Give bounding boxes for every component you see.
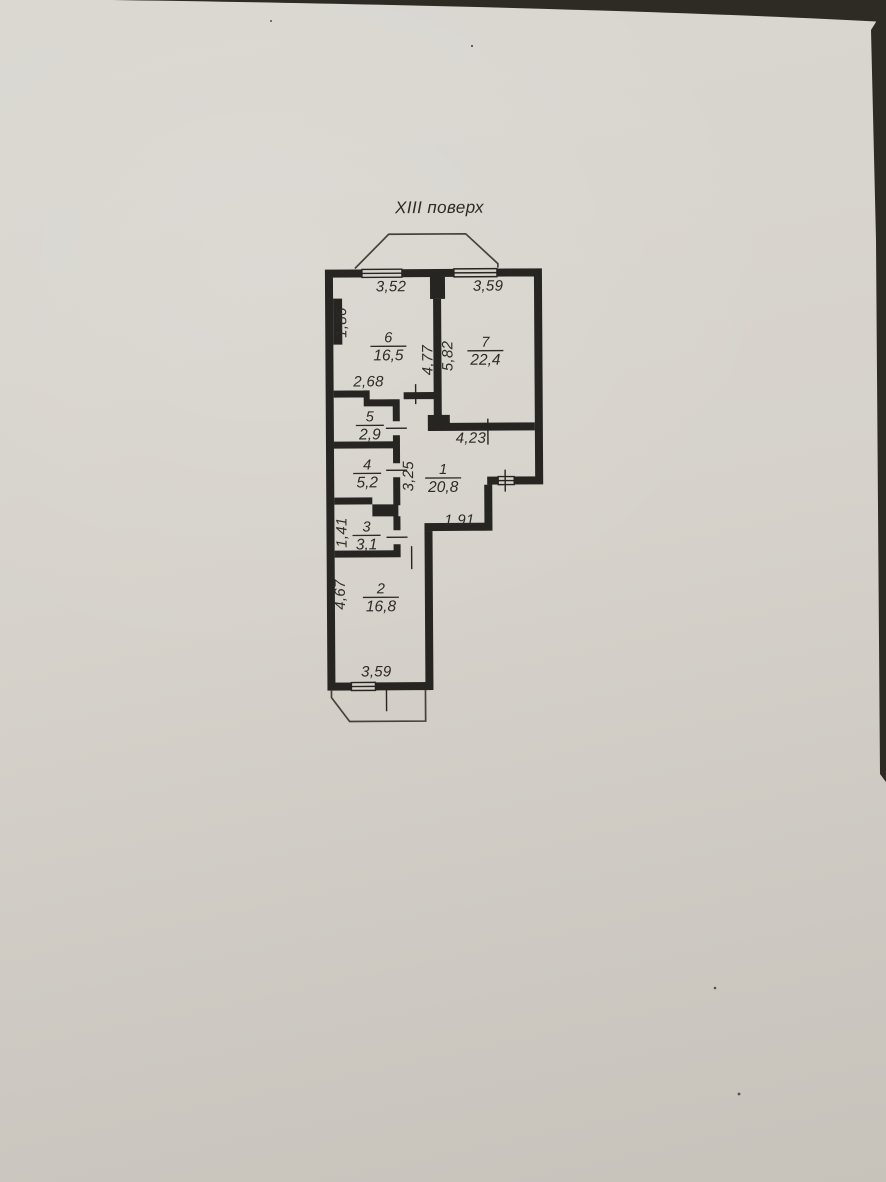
room-label-3: 3 3,1 (352, 519, 380, 553)
balcony-top-outline (355, 234, 498, 269)
room4-area: 5,2 (356, 474, 378, 491)
room4-number: 4 (363, 457, 371, 473)
room2-number: 2 (376, 581, 385, 597)
room-label-6: 6 16,5 (370, 330, 406, 364)
photo-background-edges (112, 0, 886, 1095)
dim-room6-right: 4,77 (419, 344, 436, 375)
apartment-floor-plan: XIII поверх (0, 0, 886, 1182)
dim-hall-top: 4,23 (456, 430, 487, 447)
room7-area: 22,4 (469, 352, 501, 369)
room7-number: 7 (481, 335, 490, 351)
room6-number: 6 (384, 330, 393, 346)
dim-hall-bottom: 1,91 (444, 512, 475, 529)
room3-number: 3 (362, 519, 370, 535)
window-top-left (362, 269, 402, 277)
paper-speck (738, 1093, 741, 1096)
paper-speck (471, 45, 473, 47)
room-label-2: 2 16,8 (363, 581, 399, 615)
window-bottom (351, 682, 375, 690)
room5-number: 5 (366, 409, 375, 425)
room-label-7: 7 22,4 (467, 335, 503, 369)
dim-top-left: 3,52 (376, 278, 407, 295)
dim-top-right: 3,59 (473, 278, 504, 295)
room-label-4: 4 5,2 (353, 457, 381, 491)
floor-plan-drawing: XIII поверх (324, 197, 544, 721)
dim-room2-bottom: 3,59 (361, 663, 392, 680)
dim-room3-left: 1,41 (333, 517, 350, 548)
room1-number: 1 (439, 462, 447, 478)
room-label-1: 1 20,8 (425, 462, 461, 496)
balcony-bottom-outline (331, 690, 425, 722)
room1-area: 20,8 (427, 479, 459, 496)
room-label-5: 5 2,9 (356, 409, 384, 443)
room5-area: 2,9 (358, 426, 381, 443)
dim-room2-left: 4,67 (332, 579, 349, 610)
interior-walls (333, 276, 536, 557)
room2-area: 16,8 (366, 598, 397, 615)
dim-room7-left: 5,82 (439, 340, 456, 371)
dim-room6-bottom: 2,68 (352, 373, 384, 390)
dim-room6-left: 1,86 (333, 307, 350, 338)
window-top-right (454, 269, 497, 277)
paper-speck (270, 20, 272, 22)
room3-area: 3,1 (356, 536, 378, 553)
paper-photo: XIII поверх (0, 0, 886, 1182)
paper-right-edge-shadow (871, 6, 886, 782)
room6-area: 16,5 (373, 347, 404, 364)
dimension-ticks (385, 384, 507, 712)
dim-hall-width: 3,25 (400, 461, 417, 492)
floor-title: XIII поверх (394, 198, 484, 218)
paper-top-edge-shadow (112, 0, 886, 22)
paper-speck (714, 987, 717, 990)
window-side-step (498, 477, 514, 485)
